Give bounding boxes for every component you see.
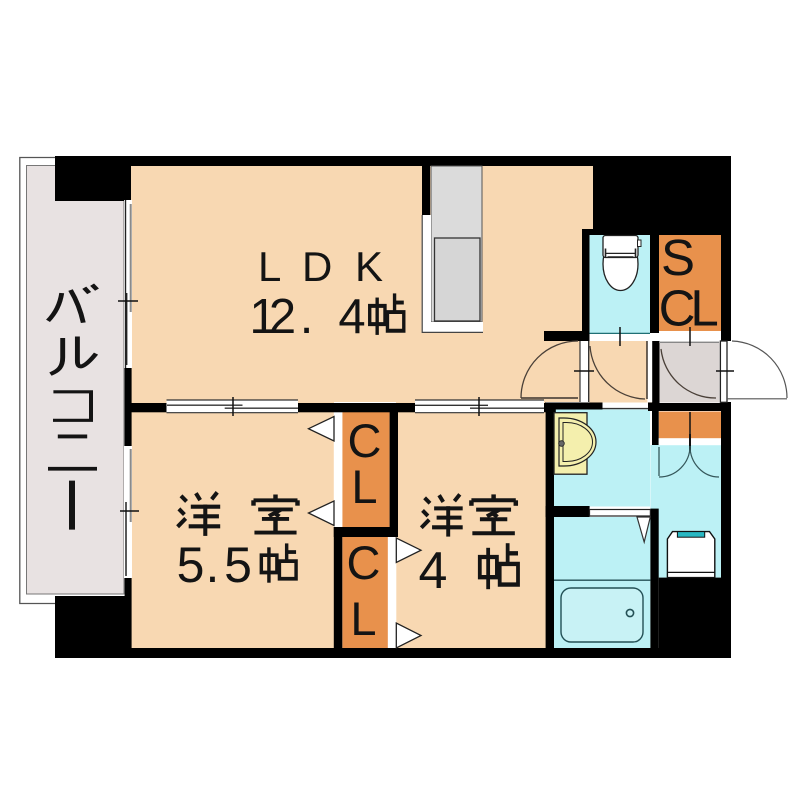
svg-text:L: L (350, 592, 376, 645)
svg-text:S: S (661, 229, 695, 286)
svg-text:.: . (206, 537, 220, 593)
svg-text:5: 5 (177, 537, 205, 593)
svg-text:5: 5 (224, 537, 252, 593)
svg-text:L: L (258, 243, 281, 290)
svg-text:L: L (351, 460, 377, 513)
svg-text:4: 4 (419, 542, 448, 600)
svg-text:C: C (347, 536, 381, 589)
svg-text:.: . (300, 290, 314, 344)
svg-text:D: D (302, 243, 332, 290)
svg-text:2: 2 (269, 290, 296, 344)
svg-text:4: 4 (338, 290, 365, 344)
svg-text:K: K (355, 243, 383, 290)
svg-text:L: L (690, 280, 718, 337)
